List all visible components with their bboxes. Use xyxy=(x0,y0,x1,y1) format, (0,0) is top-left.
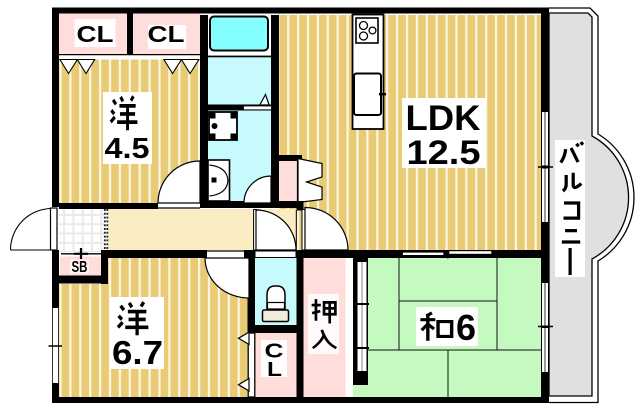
svg-text:4.5: 4.5 xyxy=(105,133,150,165)
svg-text:SB: SB xyxy=(72,259,88,276)
svg-text:CL: CL xyxy=(77,21,114,47)
svg-text:L: L xyxy=(267,359,282,381)
svg-text:CL: CL xyxy=(148,21,185,47)
svg-text:12.5: 12.5 xyxy=(407,134,481,172)
svg-text:6: 6 xyxy=(456,307,476,348)
svg-text:6.7: 6.7 xyxy=(112,334,163,371)
svg-text:LDK: LDK xyxy=(406,99,481,138)
